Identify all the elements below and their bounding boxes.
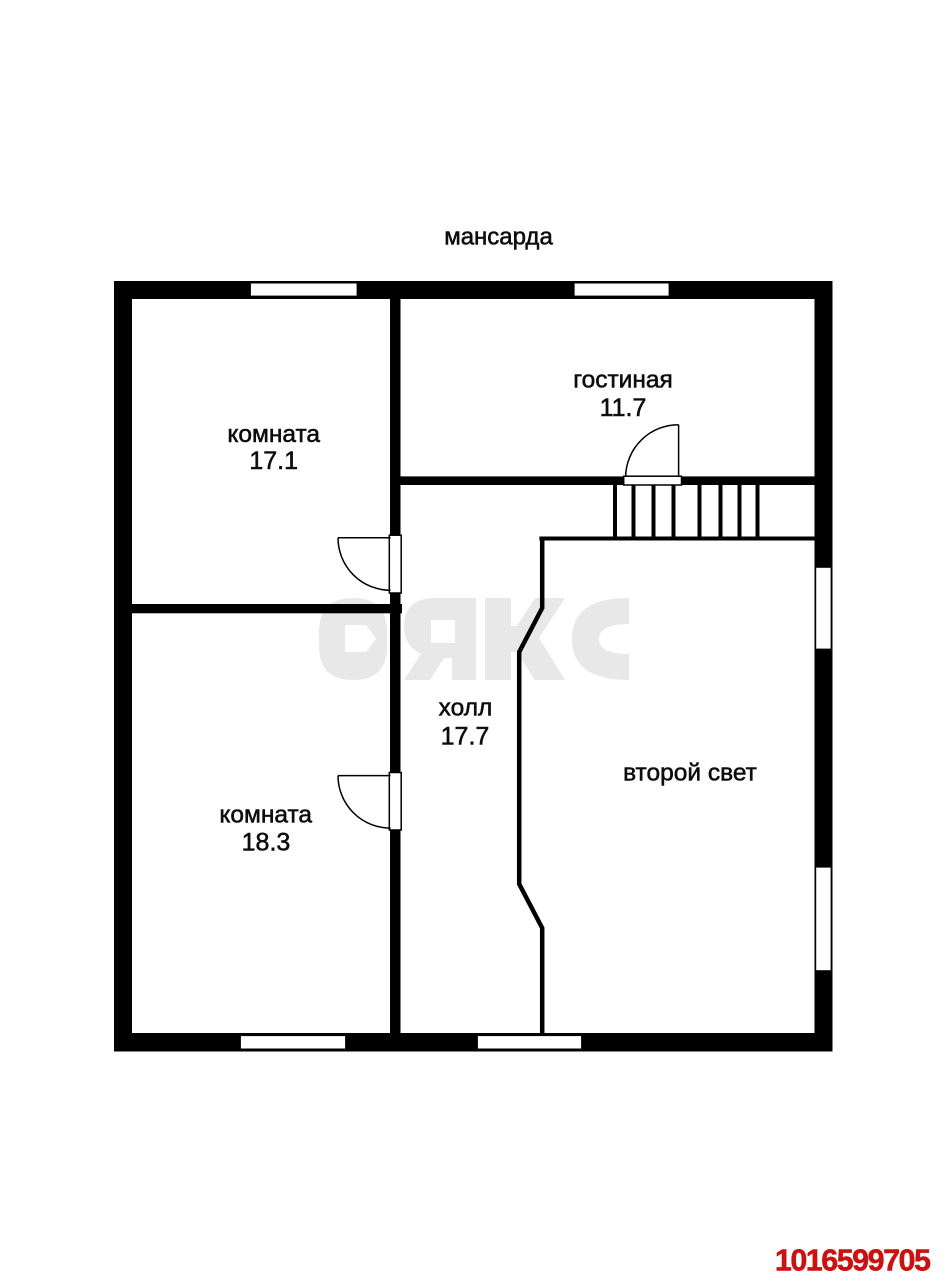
svg-text:1016599705: 1016599705 (775, 1244, 931, 1278)
svg-text:гостиная: гостиная (573, 367, 673, 394)
svg-text:18.3: 18.3 (242, 829, 291, 857)
svg-text:мансарда: мансарда (444, 224, 553, 251)
svg-text:комната: комната (219, 802, 312, 829)
svg-text:11.7: 11.7 (600, 394, 647, 422)
svg-text:17.1: 17.1 (249, 447, 298, 475)
svg-text:комната: комната (227, 421, 320, 448)
svg-text:17.7: 17.7 (441, 723, 490, 751)
svg-text:второй свет: второй свет (623, 760, 757, 787)
svg-text:холл: холл (439, 695, 493, 722)
